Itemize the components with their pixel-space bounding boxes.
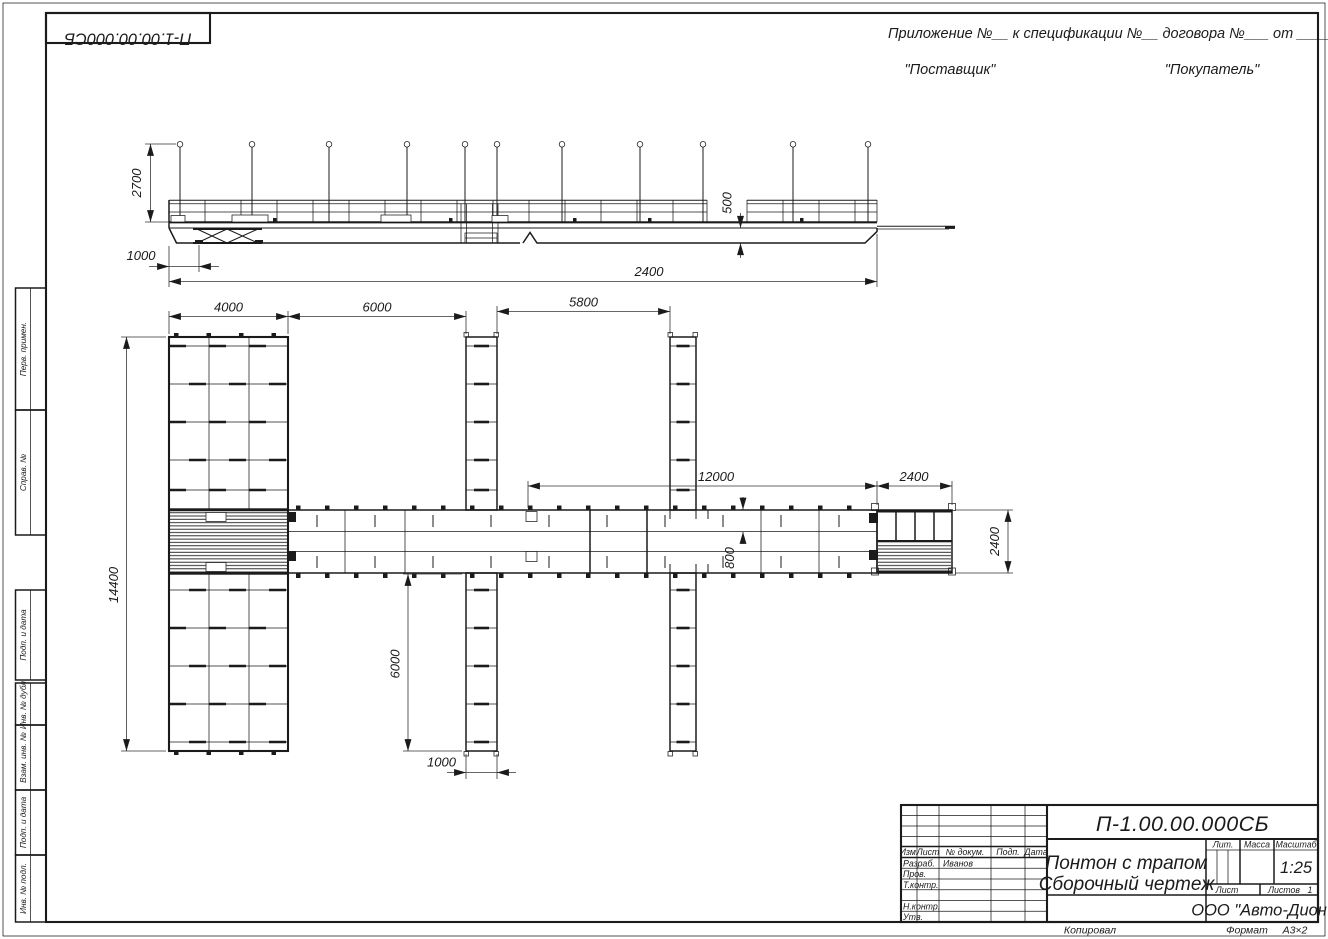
dim-14400: 14400 <box>106 337 166 751</box>
copied-label: Копировал <box>1064 925 1116 937</box>
sheet-frame <box>3 3 1325 936</box>
header-podp: Подп. <box>996 847 1019 857</box>
lit-label: Лит. <box>1212 840 1234 850</box>
header-list: Лист <box>916 847 940 857</box>
inner-frame <box>46 13 1318 922</box>
plan-boarding-ramp <box>169 509 288 574</box>
dim-text: 6000 <box>388 649 403 679</box>
margin-field-sprav-n: Справ. № <box>16 410 47 535</box>
elevation-gangway <box>877 226 955 229</box>
title-block: Изм. Лист № докум. Подп. Дата Разраб. Ив… <box>900 805 1328 922</box>
appendix-line: Приложение №__ к спецификации №__ догово… <box>888 26 1328 42</box>
dim-text: 5800 <box>569 295 599 310</box>
margin-field-inv-podl: Инв. № подл. <box>16 855 47 922</box>
row-nkontr: Н.контр. <box>903 901 940 911</box>
header-doc: № докум. <box>946 847 985 857</box>
dim-1000-bottom: 1000 <box>427 754 516 779</box>
doc-number-reversed-text: П-1.00.00.000СБ <box>64 30 192 48</box>
plan-end-platform <box>872 504 956 576</box>
elevation-view: 2700 1000 500 2400 <box>127 142 955 288</box>
dim-text: 4000 <box>214 300 244 315</box>
dim-text: 2400 <box>987 526 1002 557</box>
header-data: Дата <box>1023 847 1047 857</box>
buyer-label: "Покупатель" <box>1165 62 1260 78</box>
list-label: Лист <box>1215 885 1239 895</box>
margin-column: Перв. примен. Справ. № Подп. и дата Инв.… <box>16 288 47 922</box>
header-izm: Изм. <box>900 847 919 857</box>
margin-label: Инв. № дубл. <box>19 679 28 729</box>
supplier-label: "Поставщик" <box>905 62 997 78</box>
elevation-posts <box>177 142 871 223</box>
company-name: ООО "Авто-Дион" <box>1191 902 1328 920</box>
dim-text: 800 <box>722 546 737 568</box>
margin-field-vzam-inv: Взам. инв. № <box>16 725 47 790</box>
plan-walkway <box>288 508 878 576</box>
massa-label: Масса <box>1244 840 1270 850</box>
plan-finger-piers <box>464 333 698 757</box>
dim-2400-top: 2400 <box>877 469 952 505</box>
scale-value: 1:25 <box>1280 859 1313 877</box>
dim-text: 12000 <box>698 469 735 484</box>
drawing-sheet: П-1.00.00.000СБ Перв. примен. Справ. № П… <box>0 0 1328 939</box>
dim-2400-right: 2400 <box>955 510 1013 573</box>
title-block-right-content: П-1.00.00.000СБ Понтон с трапом Сборочны… <box>1039 812 1328 920</box>
dim-text: 1000 <box>127 248 157 263</box>
dim-text: 6000 <box>363 300 393 315</box>
dim-text: 14400 <box>106 566 121 603</box>
bottom-labels: Копировал Формат А3×2 <box>1064 925 1308 937</box>
margin-label: Перв. примен. <box>19 322 28 376</box>
format-value: А3×2 <box>1282 925 1308 937</box>
dim-4000: 4000 <box>169 300 288 335</box>
drawing-name-line1: Понтон с трапом <box>1045 853 1207 874</box>
dim-text: 2400 <box>634 264 665 279</box>
dim-5800: 5800 <box>497 295 670 335</box>
margin-field-podp-data-2: Подп. и дата <box>16 790 47 855</box>
dim-500: 500 <box>720 191 741 258</box>
dim-12000: 12000 <box>528 469 877 508</box>
dim-1000-elev: 1000 <box>127 245 219 272</box>
margin-label: Подп. и дата <box>19 796 28 848</box>
margin-label: Взам. инв. № <box>19 732 28 783</box>
plan-view: 4000 6000 5800 14400 12000 <box>106 295 1013 780</box>
listov-value: 1 <box>1308 885 1313 895</box>
row-prov: Пров. <box>903 869 926 879</box>
margin-label: Подп. и дата <box>19 609 28 661</box>
margin-field-perv-primen: Перв. примен. <box>16 288 47 410</box>
row-utv: Утв. <box>902 912 923 922</box>
margin-field-inv-dubl: Инв. № дубл. <box>16 679 47 729</box>
masshtab-label: Масштаб <box>1275 840 1317 850</box>
doc-number-reversed-box: П-1.00.00.000СБ <box>46 13 210 48</box>
row-razrab: Разраб. <box>903 859 935 869</box>
row-tkontr: Т.контр. <box>903 880 939 890</box>
elevation-scissor-lift <box>193 229 263 243</box>
appendix-header: Приложение №__ к спецификации №__ догово… <box>888 26 1328 78</box>
drawing-name-line2: Сборочный чертеж <box>1039 874 1216 895</box>
margin-label: Справ. № <box>19 454 28 491</box>
dim-text: 500 <box>720 191 735 213</box>
margin-label: Инв. № подл. <box>19 863 28 914</box>
dim-6000-top: 6000 <box>288 300 466 335</box>
format-label: Формат <box>1226 925 1268 937</box>
value-razrab: Иванов <box>943 859 973 869</box>
outer-border <box>3 3 1325 936</box>
dim-text: 2400 <box>899 469 930 484</box>
dim-6000-bottom: 6000 <box>388 574 463 751</box>
margin-field-podp-data-1: Подп. и дата <box>16 590 47 680</box>
elevation-deck-fittings <box>171 215 804 222</box>
dim-text: 2700 <box>129 168 144 199</box>
dim-text: 1000 <box>427 755 457 770</box>
listov-label: Листов <box>1267 885 1300 895</box>
doc-number: П-1.00.00.000СБ <box>1096 812 1269 836</box>
